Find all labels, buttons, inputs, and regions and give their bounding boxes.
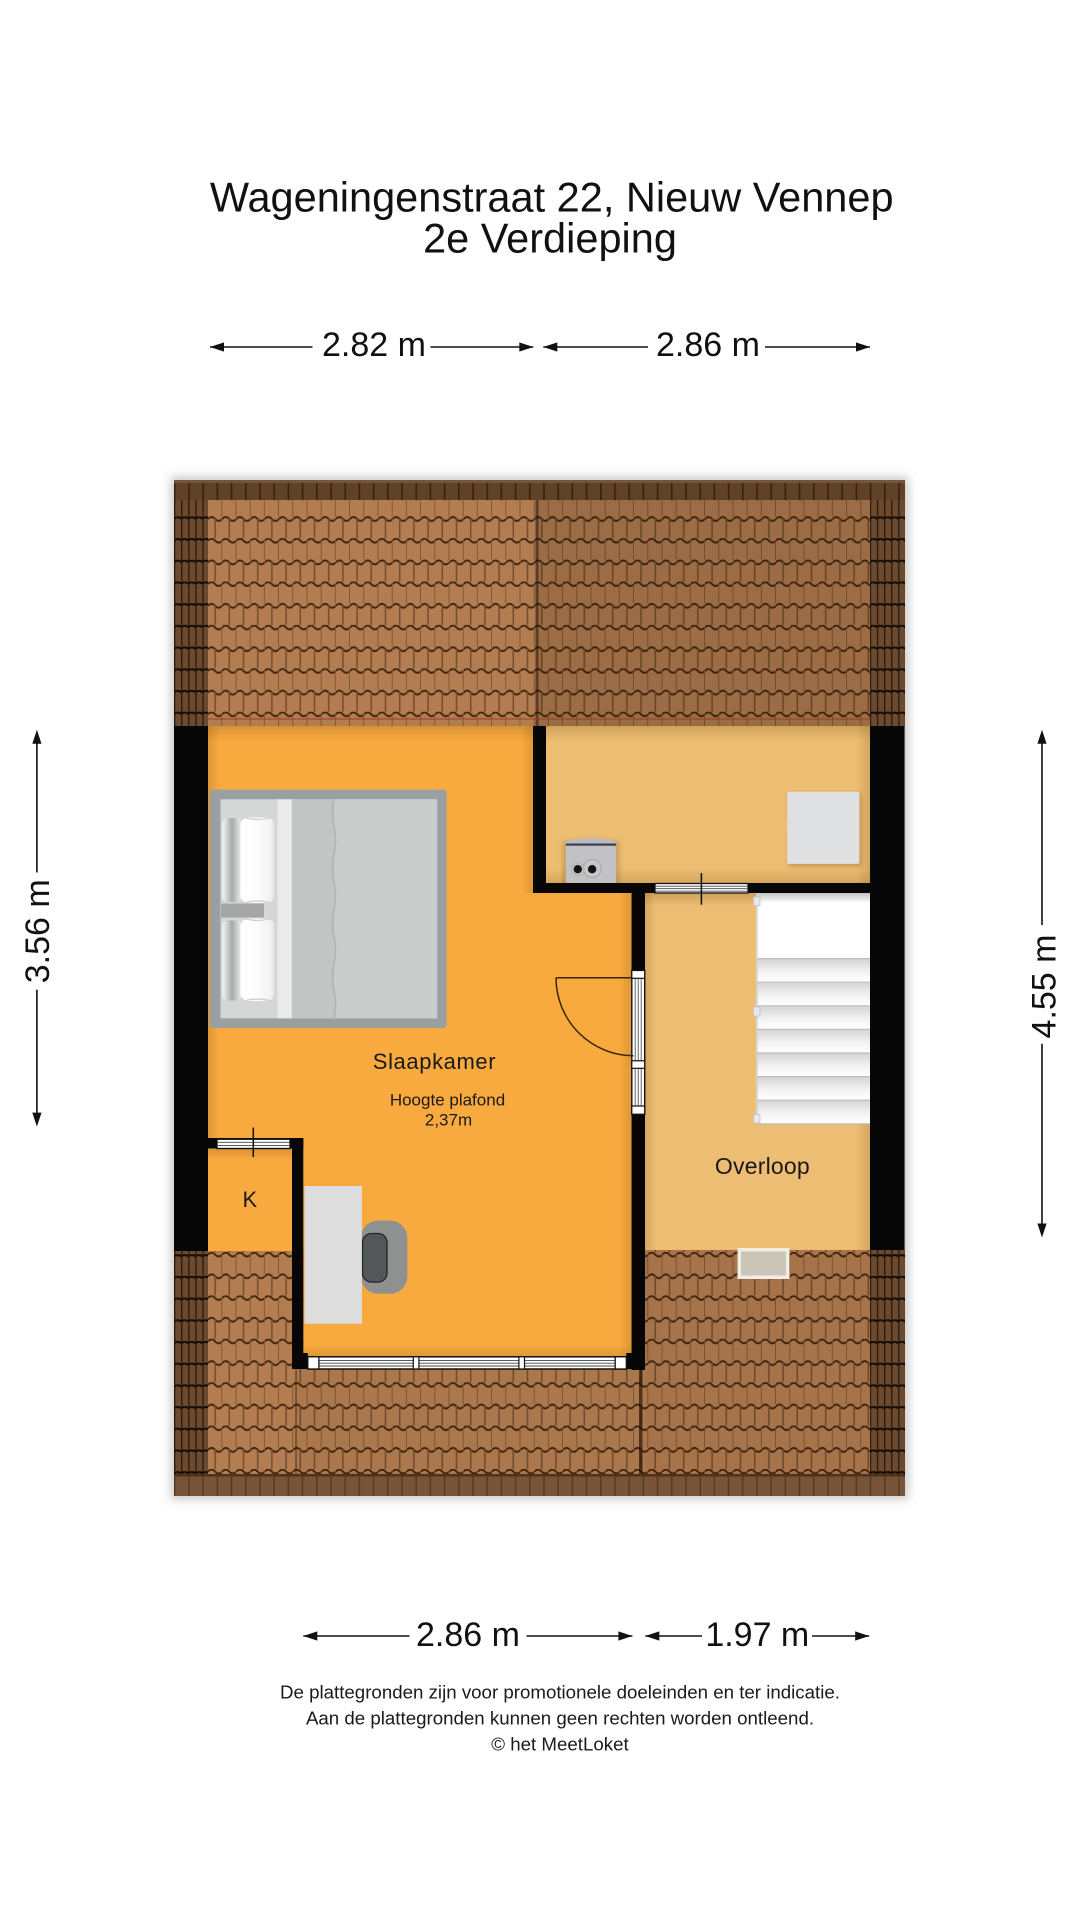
svg-text:© het MeetLoket: © het MeetLoket xyxy=(491,1733,629,1754)
svg-text:1.97 m: 1.97 m xyxy=(705,1616,809,1654)
svg-text:Slaapkamer: Slaapkamer xyxy=(373,1049,496,1074)
svg-text:4.55 m: 4.55 m xyxy=(1026,935,1064,1039)
svg-text:Hoogte plafond: Hoogte plafond xyxy=(390,1090,505,1109)
svg-text:2e Verdieping: 2e Verdieping xyxy=(423,215,677,262)
svg-text:Aan de plattegronden kunnen ge: Aan de plattegronden kunnen geen rechten… xyxy=(306,1708,814,1729)
svg-text:2.86 m: 2.86 m xyxy=(656,326,760,364)
svg-text:K: K xyxy=(243,1187,258,1212)
svg-text:2.82 m: 2.82 m xyxy=(322,326,426,364)
svg-text:2.86 m: 2.86 m xyxy=(416,1616,520,1654)
svg-text:De plattegronden zijn voor pro: De plattegronden zijn voor promotionele … xyxy=(280,1682,840,1703)
svg-text:2,37m: 2,37m xyxy=(425,1111,472,1130)
svg-text:Wageningenstraat 22, Nieuw Ven: Wageningenstraat 22, Nieuw Vennep xyxy=(210,174,894,221)
svg-text:Overloop: Overloop xyxy=(715,1153,810,1179)
svg-text:3.56 m: 3.56 m xyxy=(19,879,57,983)
